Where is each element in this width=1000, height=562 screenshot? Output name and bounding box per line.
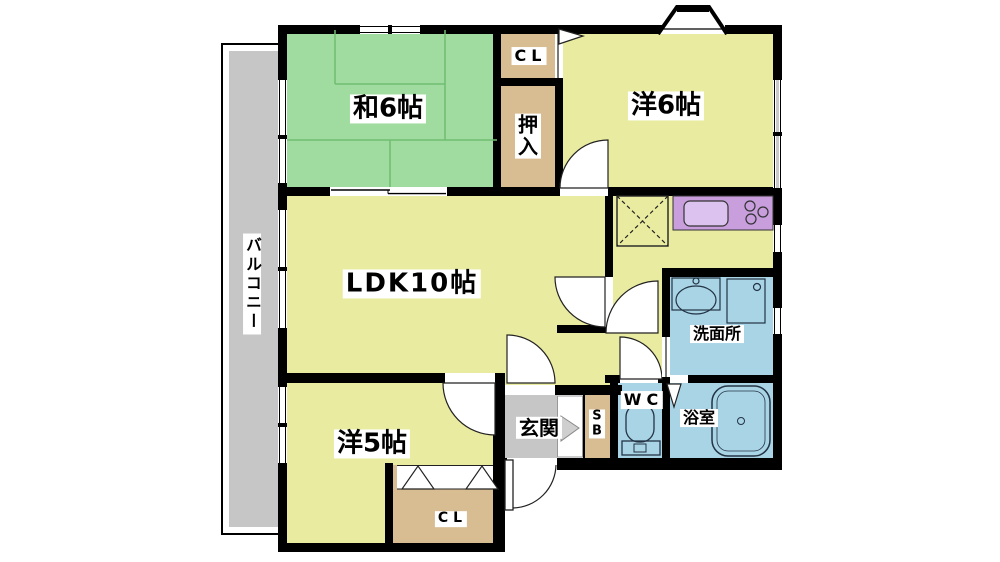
window-icon xyxy=(278,25,782,463)
refrigerator-space-icon xyxy=(617,196,668,246)
label-balcony: バルコニー xyxy=(243,234,261,335)
entrance-door-icon xyxy=(505,458,557,510)
toilet-icon xyxy=(622,404,660,455)
label-closet-bottom: CL xyxy=(435,511,467,527)
label-yoshitsu6: 洋6帖 xyxy=(628,91,704,120)
label-senmenjo: 洗面所 xyxy=(690,325,744,343)
label-ldk: LDK10帖 xyxy=(343,269,481,298)
label-washitsu: 和6帖 xyxy=(350,94,426,123)
bath-door-icon xyxy=(667,384,681,407)
label-genkan: 玄関 xyxy=(516,417,562,439)
washstand-icon xyxy=(672,278,720,314)
label-yokushitsu: 浴室 xyxy=(680,409,718,427)
label-wc: WC xyxy=(621,391,663,409)
bay-window-icon xyxy=(658,7,727,34)
plan-graphics xyxy=(0,0,1000,562)
washing-machine-icon xyxy=(727,279,765,323)
sliding-door-icon xyxy=(330,187,447,196)
kitchen-counter-icon xyxy=(673,196,773,230)
label-oshiire: 押入 xyxy=(515,114,541,159)
bathtub-icon xyxy=(712,386,770,456)
floor-plan: 和6帖 CL 押入 洋6帖 LDK10帖 バルコニー 洗面所 WC 浴室 SB … xyxy=(0,0,1000,562)
closet-top-door-icon xyxy=(555,29,583,78)
label-shoebox: SB xyxy=(589,409,605,438)
label-yoshitsu5: 洋5帖 xyxy=(334,429,410,458)
label-closet-top: CL xyxy=(512,47,547,65)
closet-bottom-door-icon xyxy=(397,465,498,489)
